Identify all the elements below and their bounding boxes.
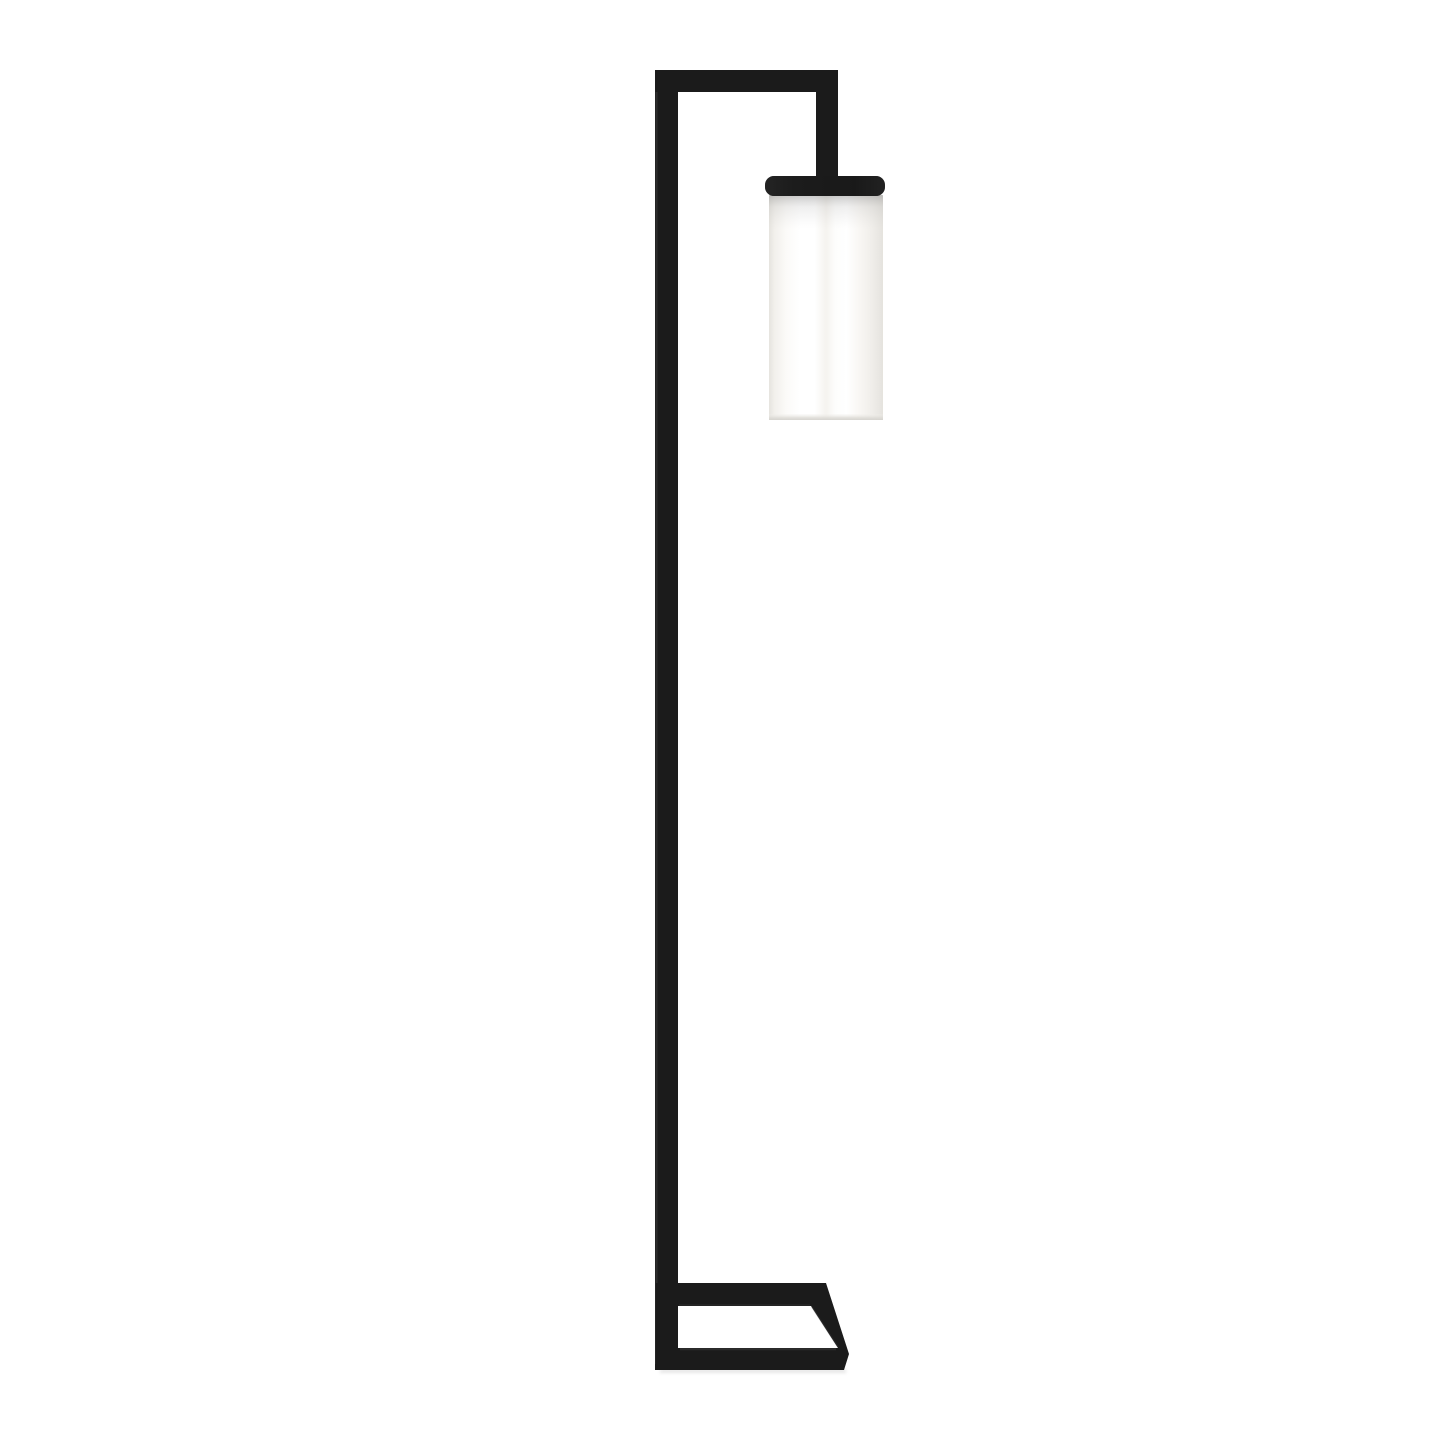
glass-shade-bottom-rim: [769, 414, 883, 420]
lamp-down-rod: [816, 90, 838, 182]
background: [0, 0, 1445, 1445]
lamp-arm: [655, 70, 838, 92]
glass-shade-top-shadow: [769, 195, 883, 229]
lamp-pole: [655, 70, 678, 1370]
lamp-illustration: [0, 0, 1445, 1445]
shade-cap-tint: [765, 176, 885, 196]
lamp-pole-highlight: [656, 74, 658, 1364]
product-photo-floor-lamp: [0, 0, 1445, 1445]
